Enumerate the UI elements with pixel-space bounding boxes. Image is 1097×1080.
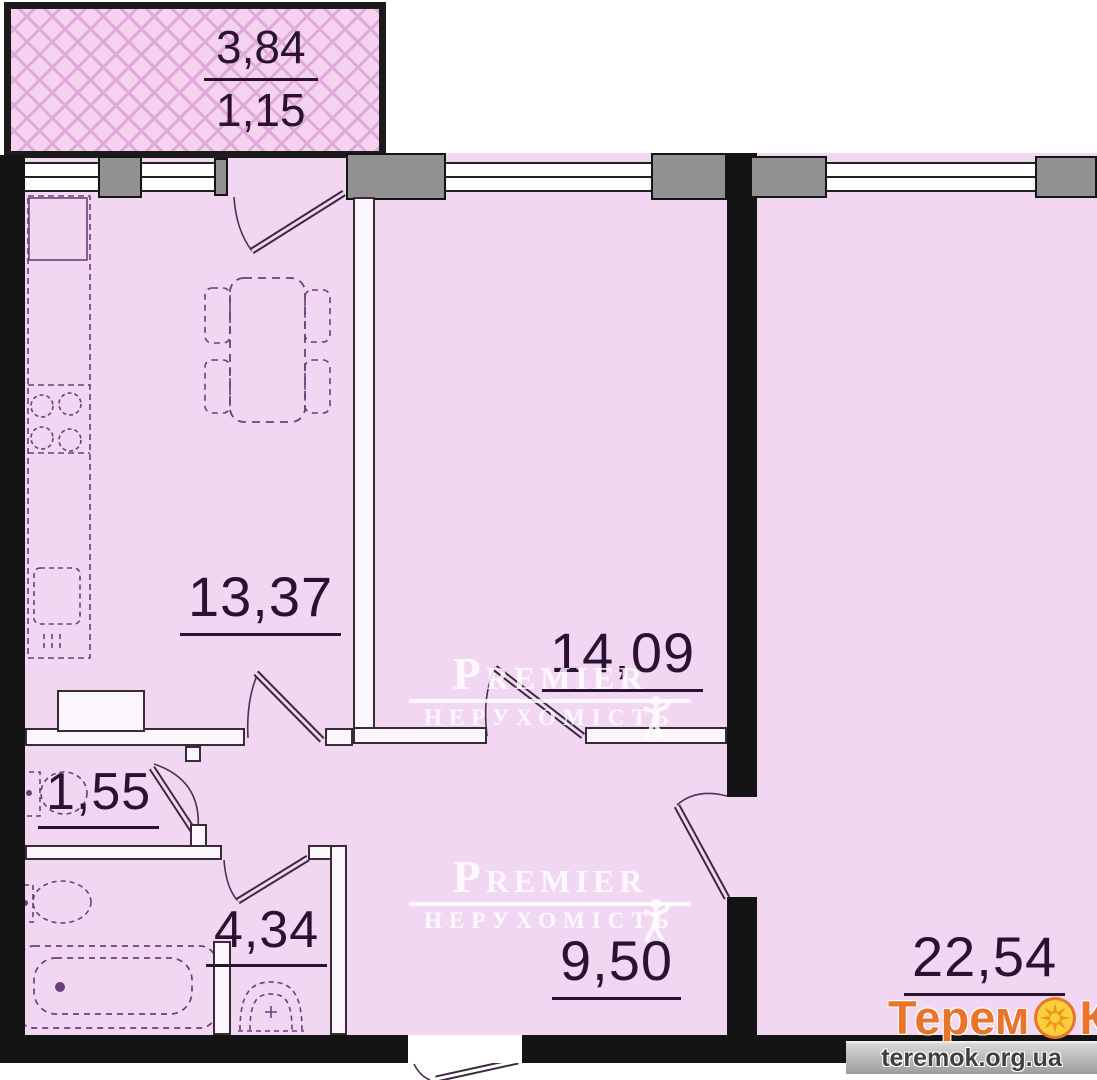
wall-kitchen-hall-stub (325, 728, 353, 746)
watermark-brand: Premier (405, 650, 695, 698)
wall-kitchen-bedroom (353, 197, 375, 744)
window (25, 162, 100, 192)
wc-wall-stub-top (185, 746, 201, 762)
wall-bath-hallway (330, 845, 347, 1035)
wall-bottom-left (0, 1035, 408, 1063)
wall-divider-upper (727, 153, 757, 797)
sun-icon (1032, 995, 1078, 1041)
balcony-floor (4, 2, 386, 158)
area-label-balcony: 3,84 1,15 (204, 20, 318, 137)
wc-wall-stub-bottom (190, 824, 207, 847)
wall-left (0, 155, 25, 1063)
window-pier (346, 153, 446, 200)
window-pier (98, 156, 142, 198)
living-room-window (827, 162, 1035, 192)
area-label-kitchen-living: 13,37 (180, 564, 341, 636)
area-label-living-room: 22,54 (904, 924, 1065, 996)
entrance-opening (408, 1035, 522, 1063)
teremok-logo: Терем К (888, 990, 1097, 1045)
balcony-area-upper: 3,84 (204, 20, 318, 81)
logo-text-end: К (1080, 990, 1097, 1045)
window-pier (651, 153, 727, 200)
watermark-premier-2: Premier НЕРУХОМІСТЬ (405, 853, 695, 934)
kitchen-window (142, 162, 216, 192)
area-label-wc: 1,55 (38, 762, 159, 829)
watermark-premier-1: Premier НЕРУХОМІСТЬ (405, 650, 695, 731)
window-pier (750, 156, 827, 198)
builder-person-icon (639, 897, 673, 947)
logo-text-start: Терем (888, 990, 1030, 1045)
builder-person-icon (639, 694, 673, 744)
watermark-brand: Premier (405, 853, 695, 901)
balcony-area-lower: 1,15 (204, 81, 318, 137)
wall-wc-bathroom-left (25, 845, 222, 860)
logo-website: teremok.org.ua (881, 1044, 1062, 1073)
window-mullion (214, 158, 228, 196)
bedroom-window (446, 162, 651, 192)
logo-url-bar: teremok.org.ua (846, 1041, 1097, 1074)
vent-shaft (57, 690, 145, 732)
area-label-bath-hall: 4,34 (206, 900, 327, 967)
window-pier (1035, 156, 1097, 198)
